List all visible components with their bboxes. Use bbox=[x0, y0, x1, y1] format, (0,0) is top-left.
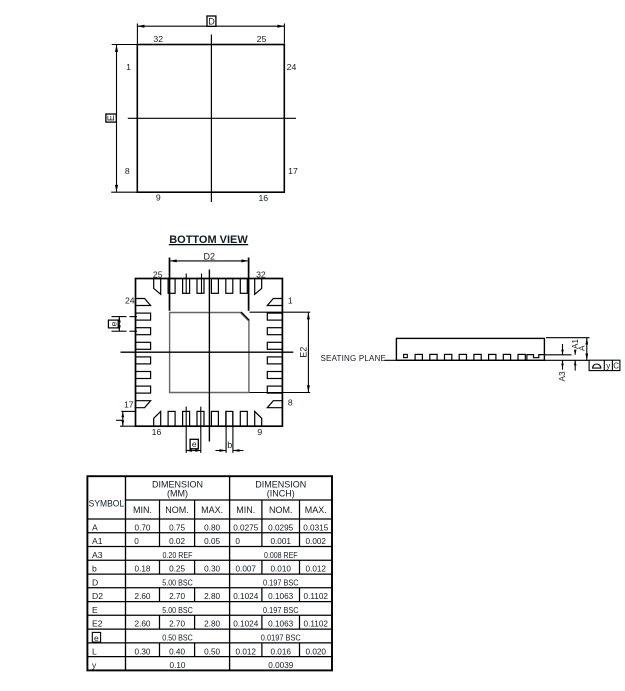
svg-text:5.00 BSC: 5.00 BSC bbox=[162, 606, 193, 615]
svg-text:E: E bbox=[92, 605, 98, 615]
svg-text:9: 9 bbox=[156, 193, 161, 203]
svg-text:A1: A1 bbox=[92, 536, 103, 546]
svg-text:0.002: 0.002 bbox=[306, 537, 327, 546]
svg-text:32: 32 bbox=[256, 270, 266, 280]
svg-text:E2: E2 bbox=[92, 619, 103, 629]
svg-text:A3: A3 bbox=[558, 371, 567, 381]
svg-text:D2: D2 bbox=[204, 251, 216, 261]
svg-text:1: 1 bbox=[288, 296, 293, 306]
svg-text:0.0197 BSC: 0.0197 BSC bbox=[261, 634, 301, 643]
svg-text:0.0295: 0.0295 bbox=[268, 523, 293, 532]
svg-text:9: 9 bbox=[257, 427, 262, 437]
svg-text:0.1102: 0.1102 bbox=[304, 620, 329, 629]
svg-text:L: L bbox=[92, 646, 97, 656]
svg-text:0.10: 0.10 bbox=[170, 661, 186, 670]
svg-text:0.25: 0.25 bbox=[169, 565, 185, 574]
svg-text:C: C bbox=[613, 361, 619, 370]
svg-text:A3: A3 bbox=[92, 550, 103, 560]
svg-text:MIN.: MIN. bbox=[236, 505, 255, 515]
svg-text:NOM.: NOM. bbox=[269, 505, 293, 515]
svg-text:y: y bbox=[92, 660, 97, 670]
svg-text:0.020: 0.020 bbox=[306, 647, 327, 656]
svg-text:y: y bbox=[606, 361, 610, 370]
svg-text:0.1063: 0.1063 bbox=[268, 620, 293, 629]
svg-text:0.70: 0.70 bbox=[135, 523, 151, 532]
svg-text:0.197 BSC: 0.197 BSC bbox=[263, 606, 299, 615]
svg-text:2.60: 2.60 bbox=[135, 620, 151, 629]
svg-text:0: 0 bbox=[235, 537, 240, 546]
svg-text:e: e bbox=[192, 439, 197, 449]
svg-text:E2: E2 bbox=[298, 347, 308, 358]
svg-text:24: 24 bbox=[125, 296, 135, 306]
svg-text:(INCH): (INCH) bbox=[267, 489, 295, 499]
svg-text:0.197 BSC: 0.197 BSC bbox=[263, 579, 299, 588]
svg-text:0.1063: 0.1063 bbox=[268, 592, 293, 601]
svg-text:A: A bbox=[92, 522, 98, 532]
svg-text:0.80: 0.80 bbox=[204, 523, 220, 532]
svg-text:0.1102: 0.1102 bbox=[304, 592, 329, 601]
svg-text:2.80: 2.80 bbox=[204, 620, 220, 629]
svg-text:0.20 REF: 0.20 REF bbox=[163, 551, 193, 560]
svg-text:D2: D2 bbox=[92, 591, 103, 601]
svg-text:2.80: 2.80 bbox=[204, 592, 220, 601]
svg-text:16: 16 bbox=[152, 427, 162, 437]
svg-text:0.1024: 0.1024 bbox=[233, 592, 258, 601]
svg-text:0.30: 0.30 bbox=[204, 565, 220, 574]
svg-text:2.60: 2.60 bbox=[135, 592, 151, 601]
svg-text:0.008 REF: 0.008 REF bbox=[264, 551, 298, 560]
svg-text:17: 17 bbox=[288, 166, 298, 176]
svg-text:e: e bbox=[94, 633, 99, 643]
svg-text:0.0039: 0.0039 bbox=[268, 661, 293, 670]
svg-text:8: 8 bbox=[288, 398, 293, 408]
svg-text:0.02: 0.02 bbox=[169, 537, 185, 546]
svg-text:32: 32 bbox=[153, 34, 163, 44]
svg-text:0.75: 0.75 bbox=[169, 523, 185, 532]
svg-text:0: 0 bbox=[134, 537, 139, 546]
svg-text:0.012: 0.012 bbox=[236, 647, 257, 656]
svg-text:0.30: 0.30 bbox=[135, 647, 151, 656]
svg-text:b: b bbox=[227, 440, 232, 450]
svg-text:0.50: 0.50 bbox=[204, 647, 220, 656]
svg-text:SYMBOL: SYMBOL bbox=[89, 499, 125, 509]
svg-text:0.1024: 0.1024 bbox=[233, 620, 258, 629]
svg-text:0.007: 0.007 bbox=[236, 565, 257, 574]
svg-text:25: 25 bbox=[257, 34, 267, 44]
svg-text:0.40: 0.40 bbox=[169, 647, 185, 656]
svg-text:16: 16 bbox=[258, 193, 268, 203]
svg-text:2.70: 2.70 bbox=[169, 620, 185, 629]
svg-text:(MM): (MM) bbox=[167, 489, 188, 499]
svg-text:MAX.: MAX. bbox=[201, 505, 223, 515]
svg-text:25: 25 bbox=[153, 270, 163, 280]
svg-text:8: 8 bbox=[125, 166, 130, 176]
svg-text:b: b bbox=[92, 564, 97, 574]
svg-text:0.012: 0.012 bbox=[306, 565, 327, 574]
svg-text:0.18: 0.18 bbox=[135, 565, 151, 574]
svg-text:2.70: 2.70 bbox=[169, 592, 185, 601]
svg-text:D: D bbox=[92, 578, 98, 588]
svg-text:A1: A1 bbox=[571, 339, 580, 349]
svg-text:NOM.: NOM. bbox=[165, 505, 189, 515]
svg-text:0.05: 0.05 bbox=[204, 537, 220, 546]
svg-text:MIN.: MIN. bbox=[133, 505, 152, 515]
svg-text:24: 24 bbox=[287, 62, 297, 72]
svg-text:SEATING PLANE: SEATING PLANE bbox=[321, 354, 387, 363]
svg-text:5.00 BSC: 5.00 BSC bbox=[162, 579, 193, 588]
svg-text:0.0275: 0.0275 bbox=[233, 523, 258, 532]
svg-text:1: 1 bbox=[126, 62, 131, 72]
svg-text:0.001: 0.001 bbox=[270, 537, 291, 546]
svg-text:e: e bbox=[108, 321, 118, 326]
svg-text:0.0315: 0.0315 bbox=[303, 523, 328, 532]
svg-text:D: D bbox=[208, 17, 215, 27]
svg-text:0.50 BSC: 0.50 BSC bbox=[162, 634, 193, 643]
svg-text:17: 17 bbox=[124, 399, 134, 409]
svg-text:0.010: 0.010 bbox=[270, 565, 291, 574]
svg-text:E: E bbox=[106, 115, 116, 121]
svg-text:0.016: 0.016 bbox=[270, 647, 291, 656]
svg-text:MAX.: MAX. bbox=[305, 505, 327, 515]
